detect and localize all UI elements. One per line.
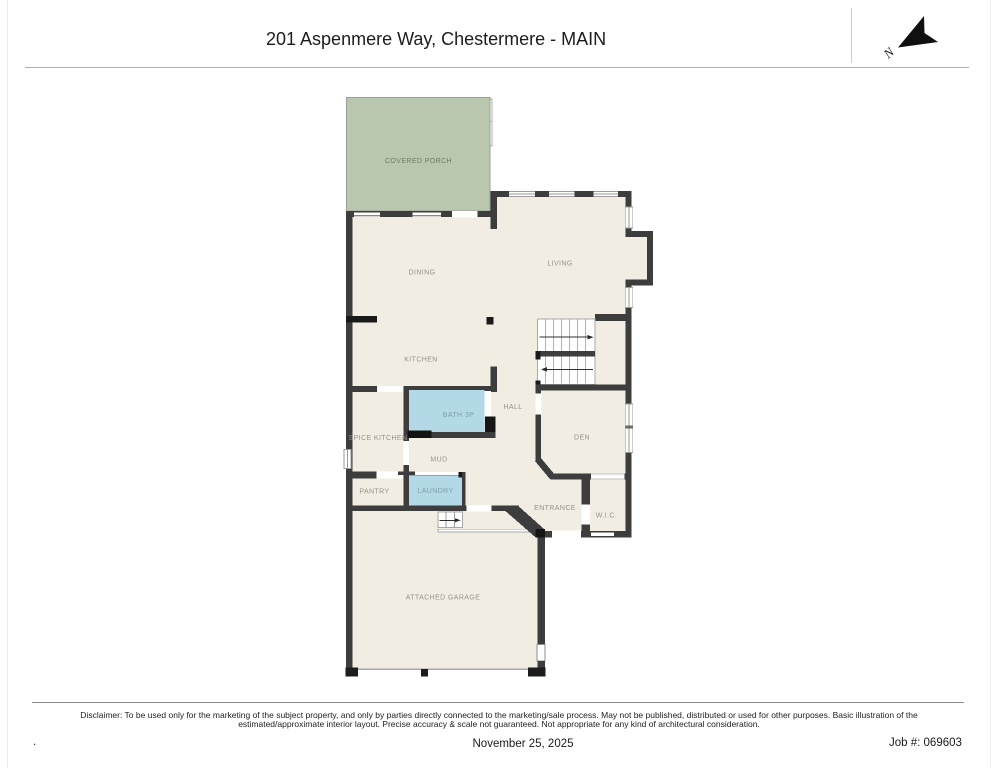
svg-text:BATH 3P: BATH 3P xyxy=(443,412,474,419)
svg-text:COVERED PORCH: COVERED PORCH xyxy=(385,158,452,165)
svg-text:LIVING: LIVING xyxy=(547,261,572,268)
svg-text:HALL: HALL xyxy=(503,404,522,411)
svg-text:LAUNDRY: LAUNDRY xyxy=(417,488,453,495)
svg-text:ATTACHED GARAGE: ATTACHED GARAGE xyxy=(406,595,481,602)
svg-text:W.I.C.: W.I.C. xyxy=(596,513,617,520)
svg-text:DINING: DINING xyxy=(409,270,436,277)
svg-text:KITCHEN: KITCHEN xyxy=(404,357,438,364)
svg-text:MUD: MUD xyxy=(430,457,447,464)
svg-text:DEN: DEN xyxy=(574,435,590,442)
svg-text:PANTRY: PANTRY xyxy=(359,489,389,496)
svg-text:ENTRANCE: ENTRANCE xyxy=(534,505,576,512)
svg-text:SPICE KITCHEN: SPICE KITCHEN xyxy=(349,435,408,442)
